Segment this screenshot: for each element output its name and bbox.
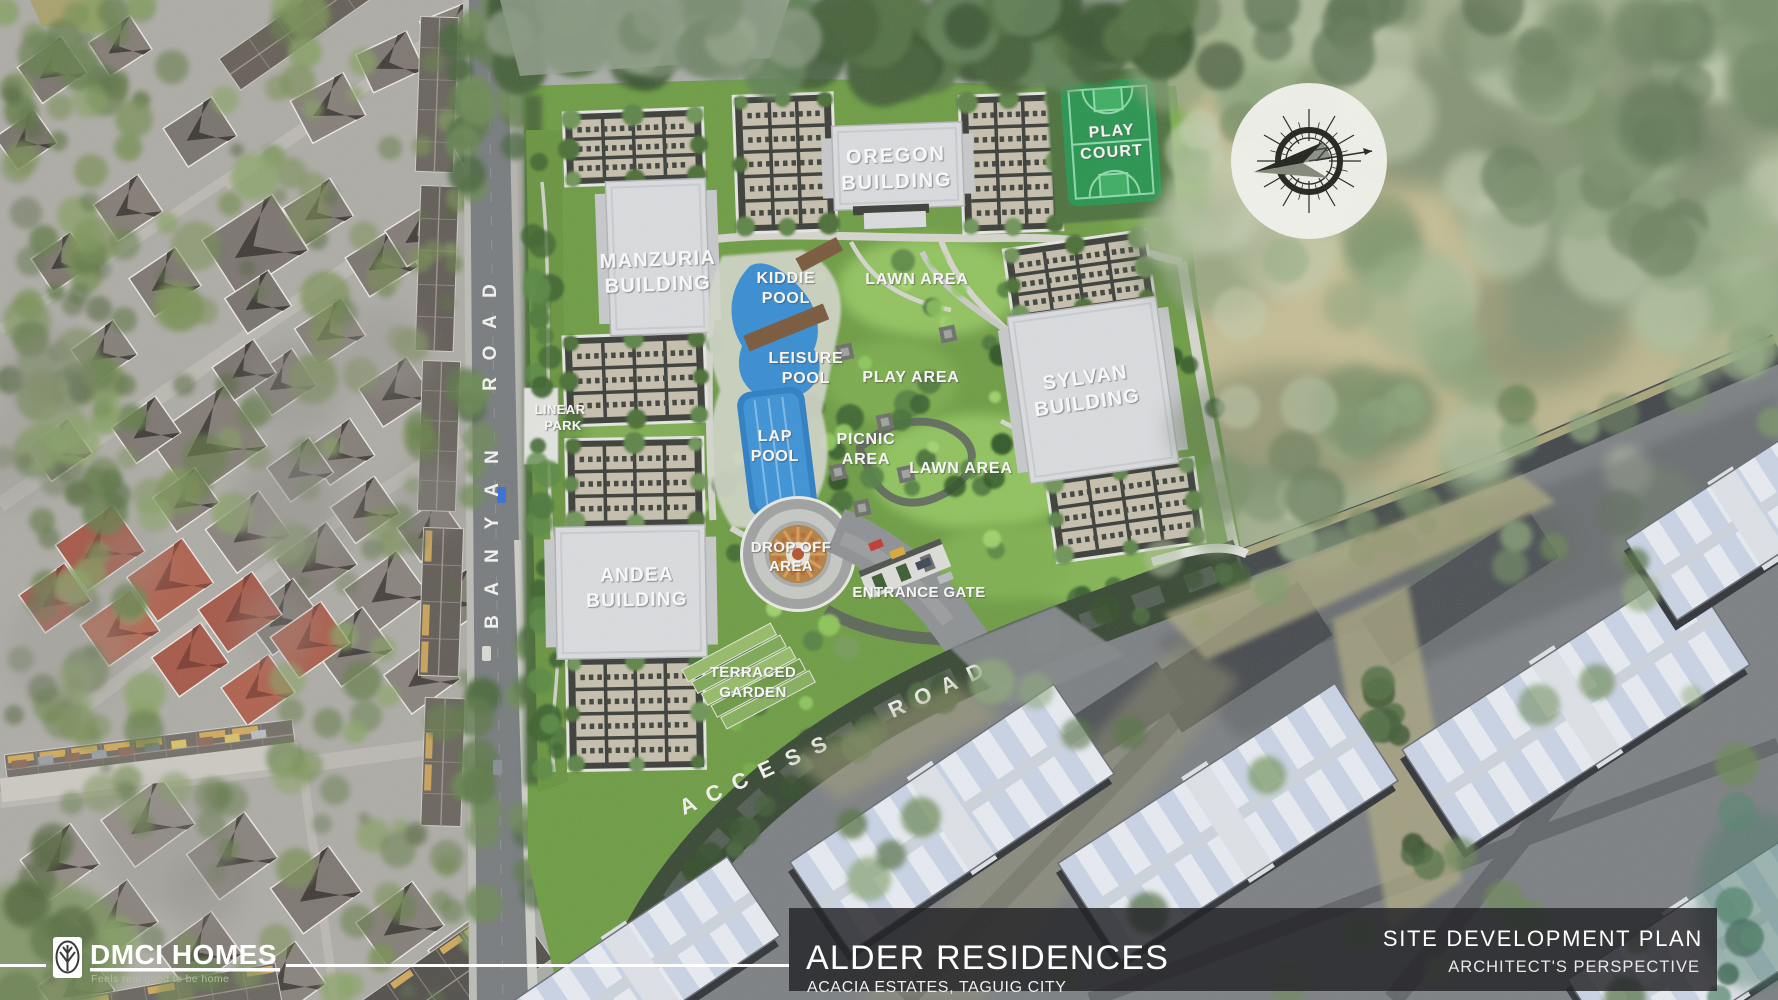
svg-text:ALDER RESIDENCES: ALDER RESIDENCES bbox=[806, 939, 1169, 977]
svg-text:ACACIA ESTATES, TAGUIG CITY: ACACIA ESTATES, TAGUIG CITY bbox=[807, 979, 1067, 996]
svg-text:DMCI HOMES: DMCI HOMES bbox=[90, 939, 277, 970]
svg-text:ARCHITECT'S PERSPECTIVE: ARCHITECT'S PERSPECTIVE bbox=[1448, 958, 1700, 976]
svg-text:SITE DEVELOPMENT PLAN: SITE DEVELOPMENT PLAN bbox=[1383, 926, 1703, 951]
svg-text:Feels real good to be home: Feels real good to be home bbox=[91, 973, 229, 985]
